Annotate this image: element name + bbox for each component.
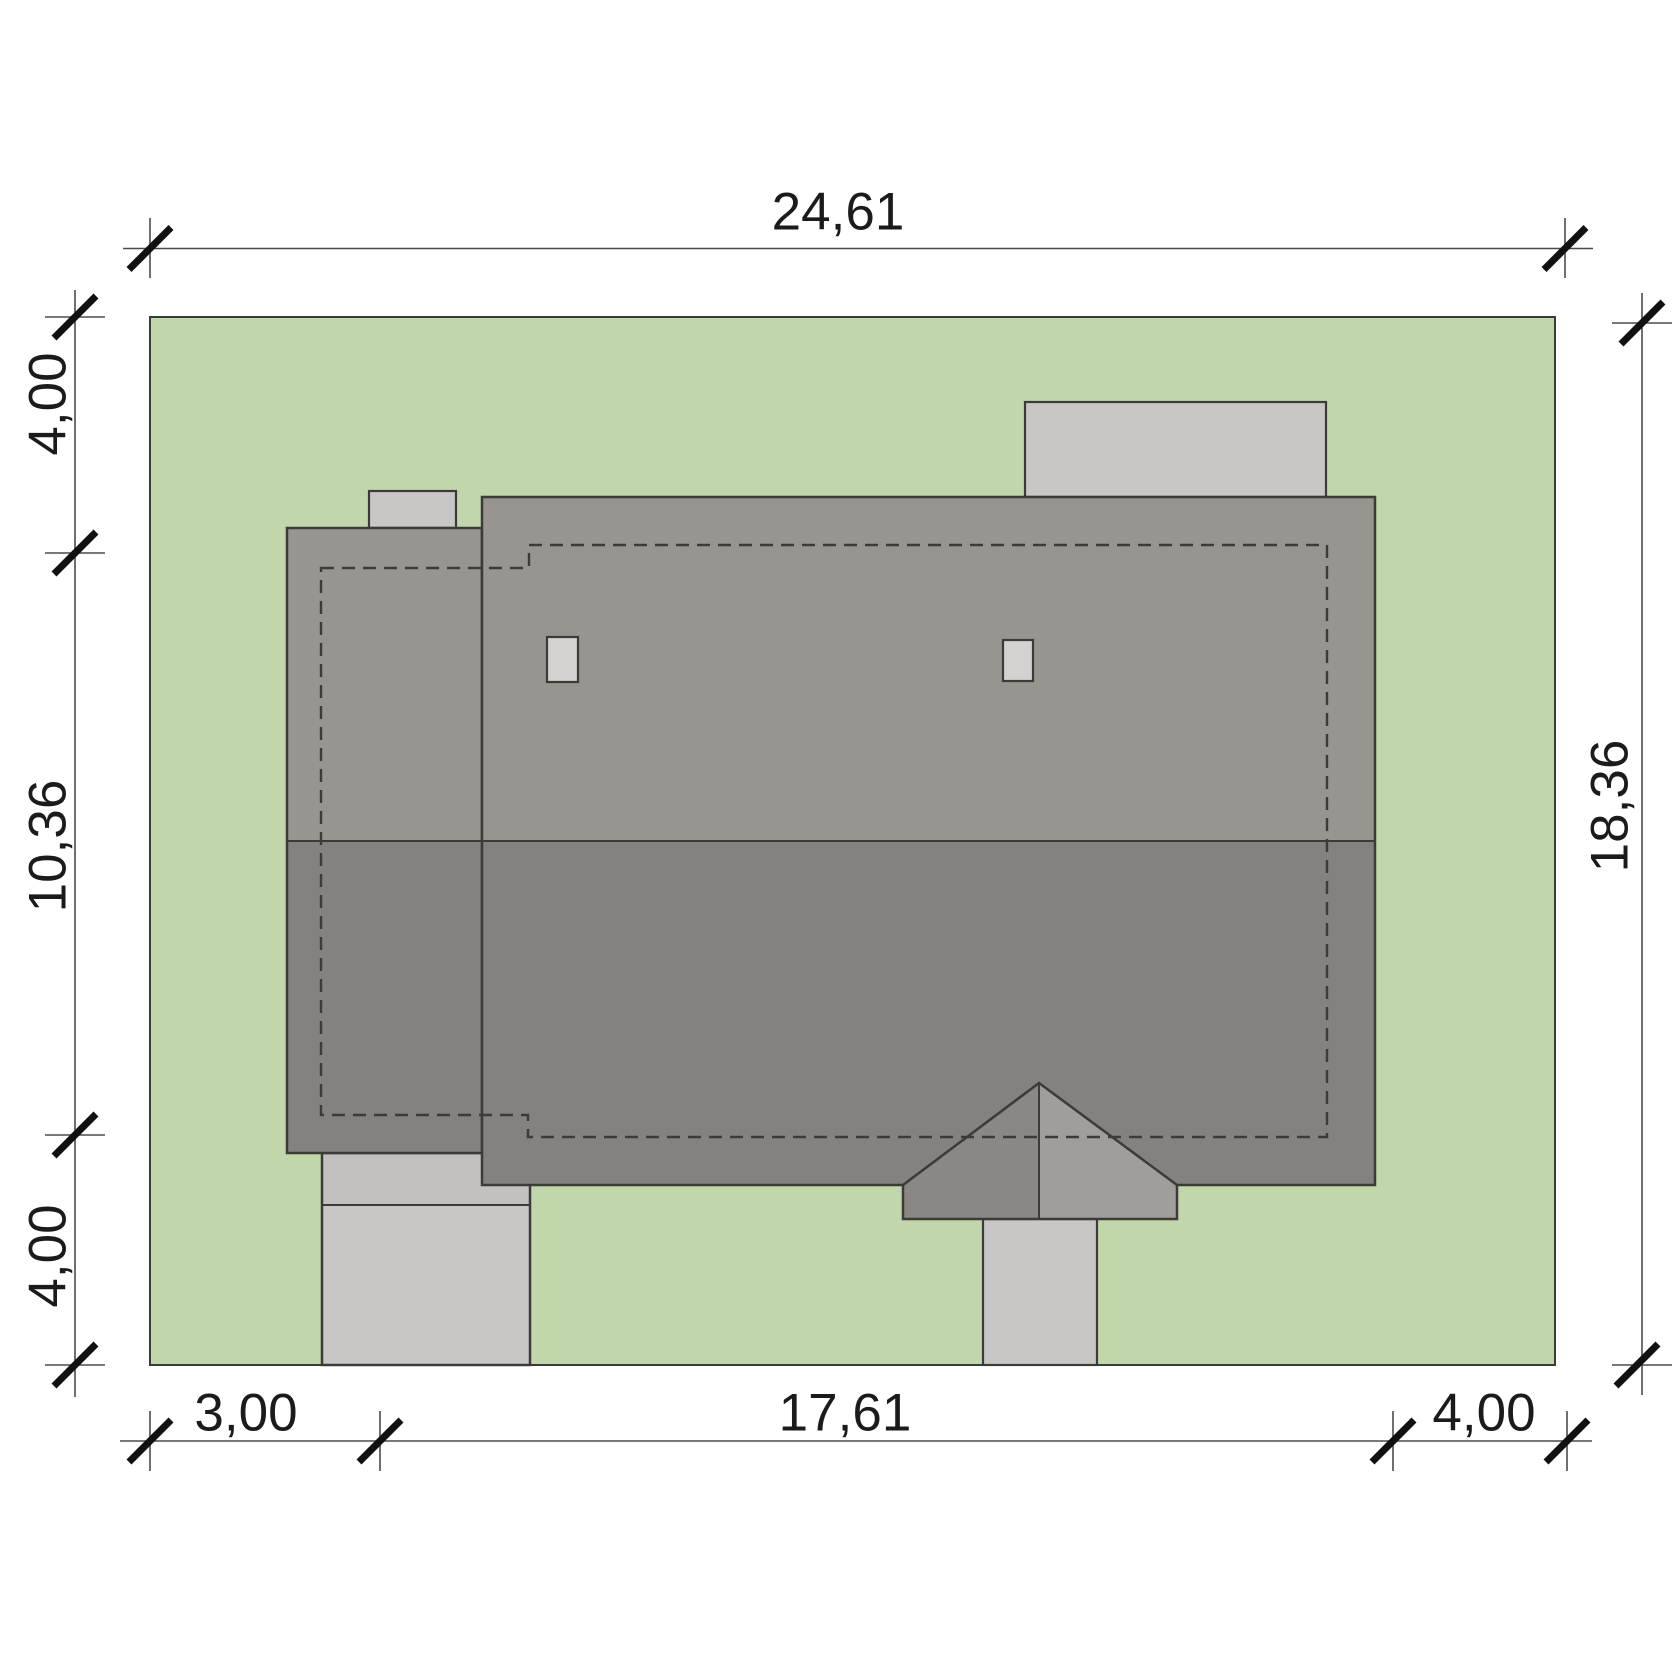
main-roof-lower-slope [482, 841, 1375, 1185]
main-roof-upper-slope [482, 497, 1375, 841]
dimension-label-right: 18,36 [1584, 740, 1637, 873]
dimension-label-left-top: 4,00 [22, 352, 75, 455]
dimension-label-bottom-right: 4,00 [1432, 1387, 1535, 1440]
dimension-label-left-middle: 10,36 [22, 780, 75, 913]
dimension-label-top: 24,61 [772, 186, 905, 239]
dimension-label-bottom-middle: 17,61 [779, 1387, 912, 1440]
rear-patio [1025, 402, 1326, 497]
dimension-label-left-bottom: 4,00 [22, 1204, 75, 1307]
chimney [369, 491, 456, 528]
dimension-label-bottom-left: 3,00 [194, 1387, 297, 1440]
entrance-walkway [983, 1219, 1097, 1365]
wing-roof-upper-slope [287, 528, 482, 841]
site-plan-drawing: 24,61 18,36 4,00 10,36 4,00 3,00 17,61 4… [0, 0, 1680, 1680]
roof-window [1003, 640, 1033, 681]
wing-roof-lower-slope [287, 841, 482, 1153]
roof-window [547, 637, 578, 682]
